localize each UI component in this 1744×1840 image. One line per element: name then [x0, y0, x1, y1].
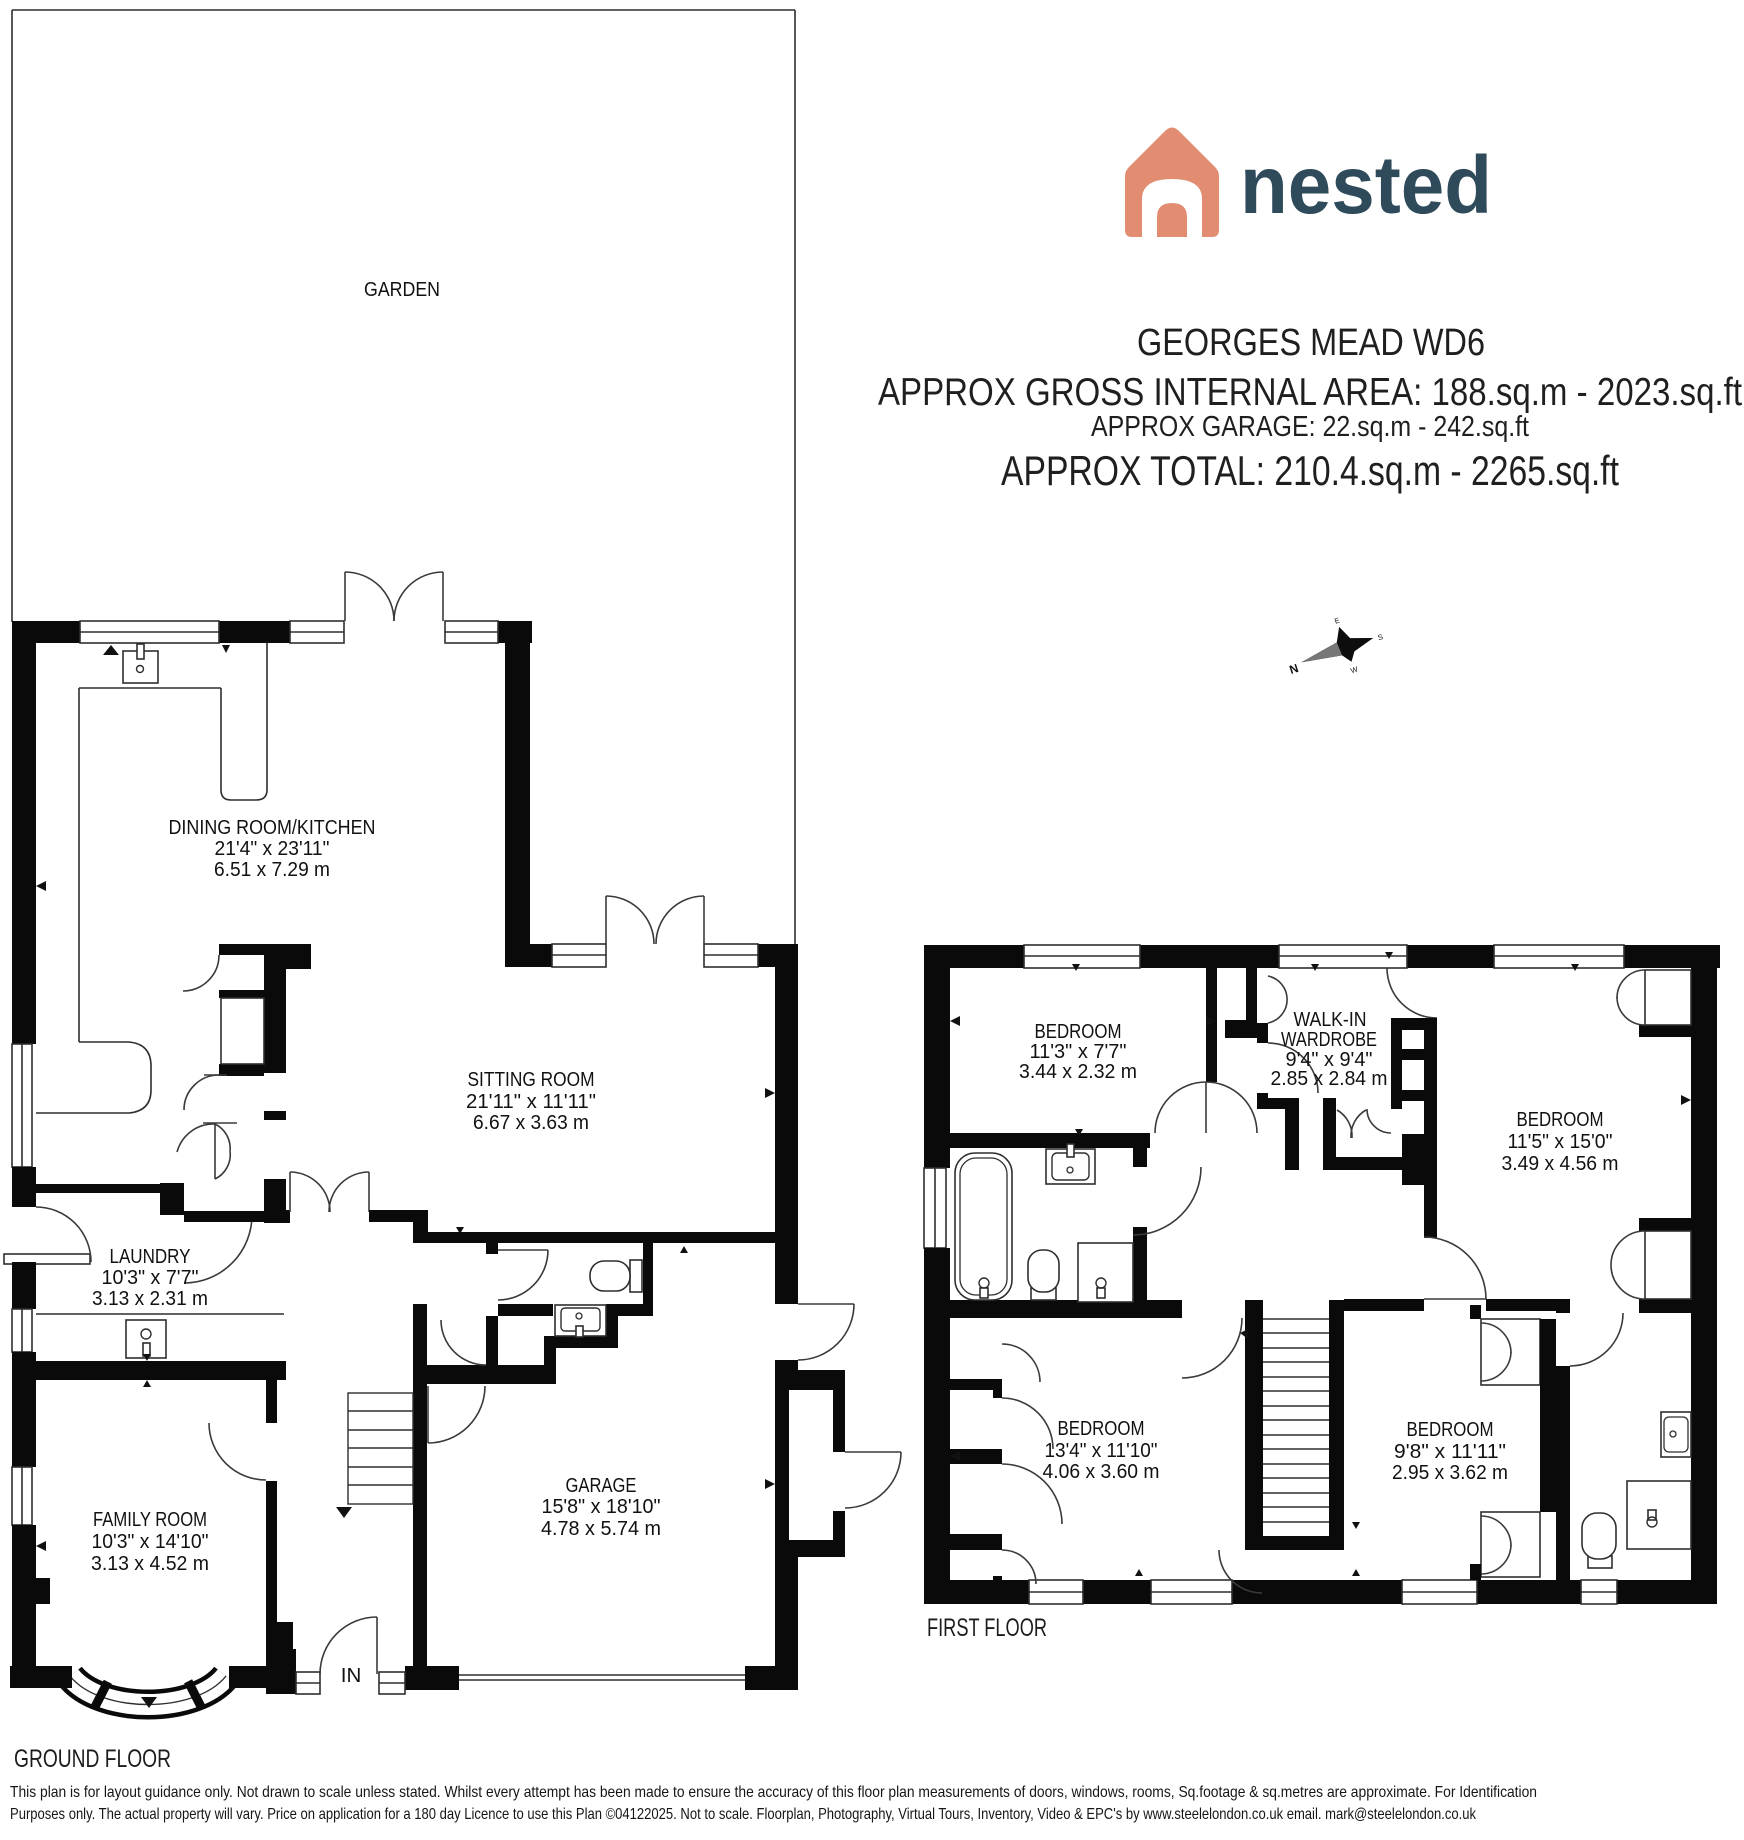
svg-text:13'4" x 11'10": 13'4" x 11'10" — [1045, 1439, 1158, 1462]
svg-text:3.49 x 4.56 m: 3.49 x 4.56 m — [1502, 1152, 1619, 1175]
svg-text:GEORGES MEAD WD6: GEORGES MEAD WD6 — [1137, 322, 1485, 364]
svg-text:6.51 x 7.29 m: 6.51 x 7.29 m — [214, 858, 330, 881]
svg-text:2.85 x 2.84 m: 2.85 x 2.84 m — [1271, 1067, 1388, 1090]
svg-text:LAUNDRY: LAUNDRY — [110, 1245, 191, 1268]
svg-text:GARDEN: GARDEN — [364, 278, 440, 301]
svg-text:10'3" x 14'10": 10'3" x 14'10" — [92, 1530, 209, 1553]
svg-text:21'11" x 11'11": 21'11" x 11'11" — [466, 1090, 596, 1113]
svg-text:IN: IN — [341, 1664, 362, 1687]
svg-text:4.06 x 3.60 m: 4.06 x 3.60 m — [1043, 1460, 1160, 1483]
svg-text:FAMILY ROOM: FAMILY ROOM — [93, 1508, 207, 1531]
svg-text:6.67 x 3.63 m: 6.67 x 3.63 m — [473, 1111, 589, 1134]
svg-text:DINING ROOM/KITCHEN: DINING ROOM/KITCHEN — [169, 816, 376, 839]
svg-text:GROUND FLOOR: GROUND FLOOR — [14, 1745, 171, 1773]
svg-text:BEDROOM: BEDROOM — [1407, 1418, 1494, 1441]
svg-text:nested: nested — [1240, 140, 1492, 231]
svg-text:2.95 x 3.62 m: 2.95 x 3.62 m — [1392, 1461, 1508, 1484]
svg-text:FIRST FLOOR: FIRST FLOOR — [927, 1614, 1047, 1642]
svg-text:BEDROOM: BEDROOM — [1058, 1417, 1145, 1440]
svg-text:APPROX TOTAL: 210.4.sq.m - 226: APPROX TOTAL: 210.4.sq.m - 2265.sq.ft — [1001, 447, 1619, 494]
svg-text:BEDROOM: BEDROOM — [1517, 1108, 1604, 1131]
svg-text:3.13 x 2.31 m: 3.13 x 2.31 m — [92, 1287, 208, 1310]
svg-text:3.13 x 4.52 m: 3.13 x 4.52 m — [91, 1552, 209, 1575]
svg-text:APPROX GROSS INTERNAL AREA: 18: APPROX GROSS INTERNAL AREA: 188.sq.m - 2… — [878, 371, 1742, 414]
svg-text:15'8" x 18'10": 15'8" x 18'10" — [542, 1495, 661, 1518]
svg-text:This plan is for layout guidan: This plan is for layout guidance only. N… — [10, 1784, 1537, 1801]
svg-text:SITTING ROOM: SITTING ROOM — [468, 1068, 595, 1091]
svg-text:APPROX GARAGE: 22.sq.m - 242.s: APPROX GARAGE: 22.sq.m - 242.sq.ft — [1091, 411, 1529, 443]
svg-text:4.78 x 5.74 m: 4.78 x 5.74 m — [541, 1517, 661, 1540]
svg-text:10'3" x 7'7": 10'3" x 7'7" — [102, 1266, 199, 1289]
svg-text:3.44 x 2.32 m: 3.44 x 2.32 m — [1019, 1060, 1137, 1083]
svg-text:GARAGE: GARAGE — [566, 1474, 637, 1497]
svg-text:Purposes only. The actual prop: Purposes only. The actual property will … — [10, 1806, 1477, 1823]
svg-text:21'4" x 23'11": 21'4" x 23'11" — [215, 837, 330, 860]
svg-text:11'5" x 15'0": 11'5" x 15'0" — [1508, 1130, 1613, 1153]
svg-text:9'8" x 11'11": 9'8" x 11'11" — [1394, 1440, 1506, 1463]
